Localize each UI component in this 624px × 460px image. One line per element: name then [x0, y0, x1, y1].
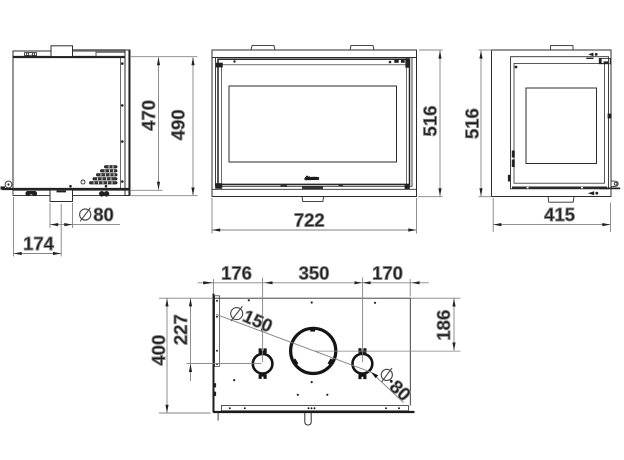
svg-text:516: 516 — [461, 108, 482, 139]
svg-text:470: 470 — [138, 100, 159, 131]
svg-text:350: 350 — [299, 263, 330, 284]
svg-text:150: 150 — [240, 306, 276, 336]
svg-text:415: 415 — [544, 204, 575, 225]
svg-text:174: 174 — [23, 233, 55, 254]
svg-text:722: 722 — [294, 210, 325, 231]
svg-text:490: 490 — [167, 109, 188, 140]
svg-text:170: 170 — [372, 263, 403, 284]
svg-text:80: 80 — [93, 204, 114, 225]
svg-text:186: 186 — [433, 310, 454, 341]
svg-text:400: 400 — [148, 335, 169, 366]
svg-text:176: 176 — [221, 263, 252, 284]
svg-text:516: 516 — [419, 106, 440, 137]
svg-text:227: 227 — [170, 314, 191, 345]
